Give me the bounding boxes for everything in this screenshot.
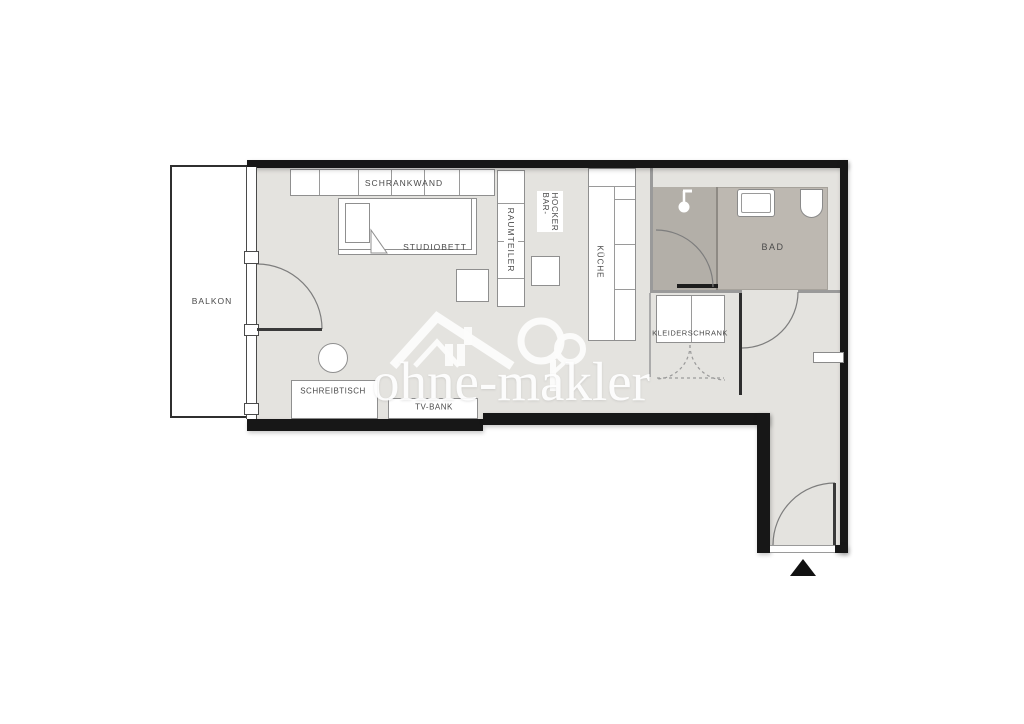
wall-top xyxy=(247,160,848,168)
bar-stool xyxy=(531,256,560,286)
wall-bath-bottom-left xyxy=(650,290,742,293)
label-barhocker: BAR-HOCKER xyxy=(541,192,559,231)
wall-corridor-left xyxy=(757,413,770,553)
balcony-window-front xyxy=(246,167,257,419)
label-raumteiler: RAUMTEILER xyxy=(504,207,518,274)
bar-stool xyxy=(456,269,489,302)
label-kueche: KÜCHE xyxy=(594,244,607,279)
entrance-door-leaf xyxy=(833,483,836,545)
label-schrankwand: SCHRANKWAND xyxy=(365,178,443,188)
wall-bath-left xyxy=(650,167,653,293)
balcony xyxy=(170,165,247,418)
toilet xyxy=(800,189,823,218)
label-bad: BAD xyxy=(761,242,784,252)
floorplan-canvas: BALKON SCHRANKWAND STUDIOBETT RAUMTEILER… xyxy=(0,0,1024,724)
wall-bottom-right xyxy=(483,413,770,425)
watermark-text: ohne-makler xyxy=(351,350,671,413)
label-balkon: BALKON xyxy=(192,296,233,306)
label-studiobett: STUDIOBETT xyxy=(403,242,467,252)
label-kleiderschrank: KLEIDERSCHRANK xyxy=(652,329,728,338)
wall-bottom-left xyxy=(247,419,483,431)
shower-entry-line xyxy=(677,284,718,288)
wall-corridor-bottom-stub xyxy=(835,545,848,553)
bathroom-sink-basin xyxy=(741,193,771,213)
entrance-arrow-icon xyxy=(786,555,820,581)
entry-corridor-floor xyxy=(770,413,840,545)
window-mullion xyxy=(244,403,259,415)
wall-bath-bottom-right xyxy=(798,290,842,293)
shower-floor xyxy=(653,187,717,290)
bed-pillow xyxy=(345,203,370,243)
wall-niche xyxy=(813,352,844,363)
desk-chair xyxy=(318,343,348,373)
entrance-threshold xyxy=(770,545,835,553)
wall-wardrobe-nook xyxy=(739,293,742,395)
balcony-door-leaf xyxy=(257,328,322,331)
window-mullion xyxy=(244,251,259,264)
shower-partition xyxy=(716,187,718,290)
